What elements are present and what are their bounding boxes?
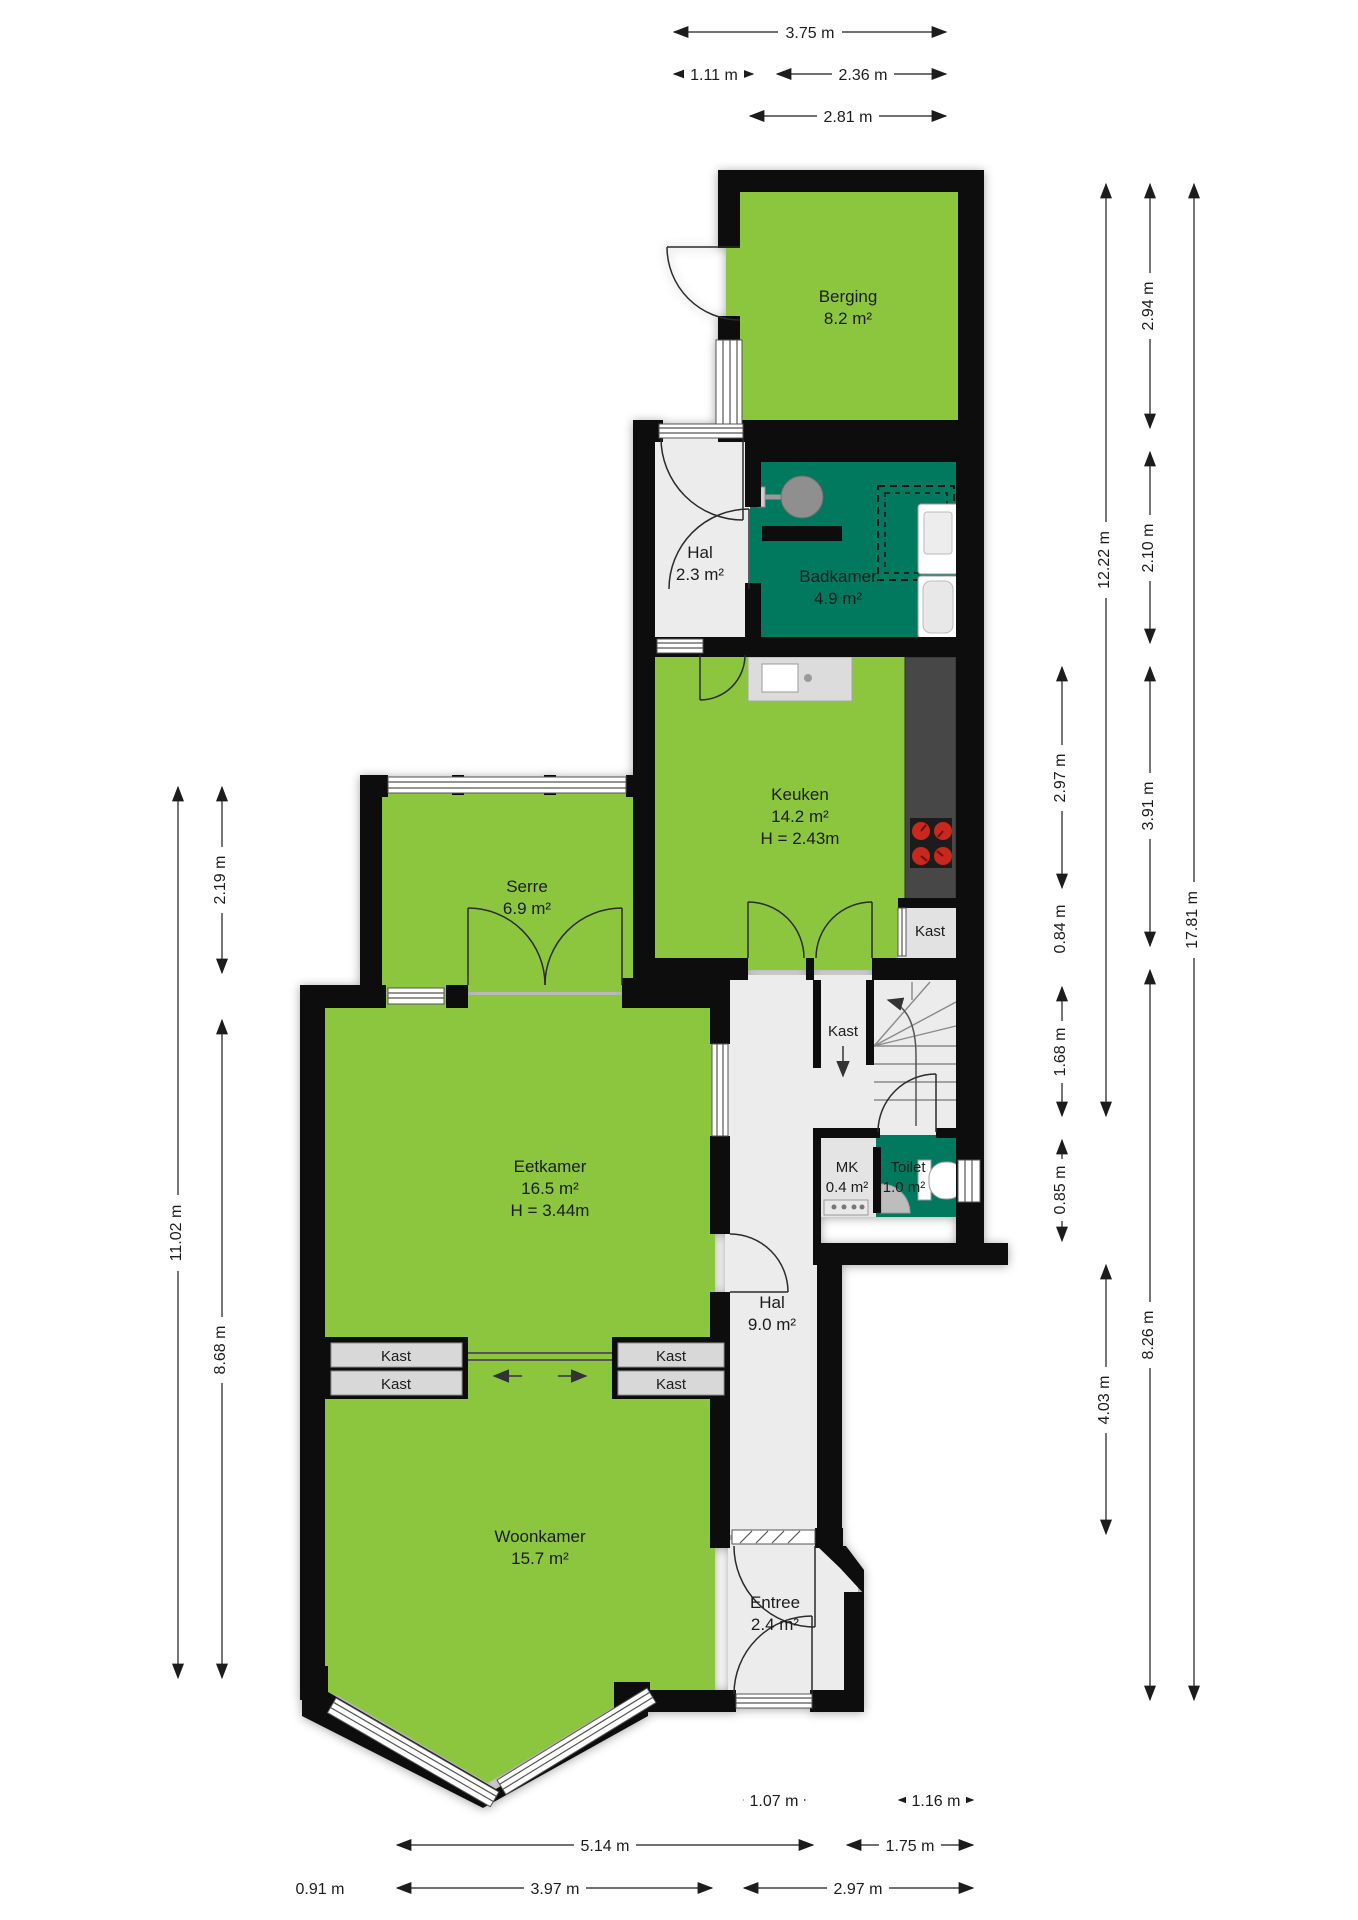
eetkamer-height: H = 3.44m [511,1201,590,1220]
dim-left-868: 8.68 m [210,1020,229,1678]
kast-trap-label: Kast [828,1023,859,1040]
hal-boven-floor [645,430,750,647]
dim-top-236: 2.36 m [777,64,946,84]
dim-right-826: 8.26 m [1138,970,1157,1700]
entree-area: 2.4 m² [751,1615,800,1634]
toilet-area: 1.0 m² [883,1179,926,1196]
kitchen-sink [762,664,798,692]
svg-text:2.81 m: 2.81 m [824,109,873,126]
dim-left-219: 2.19 m [210,787,229,973]
berging-floor [726,180,966,432]
serre-bottom-window [388,988,444,1004]
svg-text:1.11 m: 1.11 m [690,67,738,84]
svg-text:0.84 m: 0.84 m [1052,905,1069,954]
dim-right-294: 2.94 m [1138,184,1157,428]
floorplan: Berging 8.2 m² Hal 2.3 m² Badkamer 4.9 m… [300,170,1008,1808]
dim-bottom-116: 1.16 m [899,1790,973,1810]
hal-boven-bottom-window [657,639,703,653]
mk-label: MK [836,1159,859,1176]
dim-right-1781: 17.81 m [1182,184,1201,1700]
kitchen-faucet [804,674,812,682]
svg-text:3.97 m: 3.97 m [531,1881,580,1898]
serre-floor [372,785,638,992]
hal-boven-label: Hal [687,543,713,562]
svg-text:5.14 m: 5.14 m [581,1838,630,1855]
kast-rechts-2-label: Kast [656,1376,687,1393]
dim-top-111: 1.11 m [674,64,753,84]
front-door-glass [736,1694,812,1708]
svg-text:2.19 m: 2.19 m [212,856,229,905]
svg-text:1.16 m: 1.16 m [912,1793,961,1810]
svg-text:0.91 m: 0.91 m [296,1881,345,1898]
dim-right-297: 2.97 m [1050,667,1069,888]
svg-text:2.36 m: 2.36 m [839,67,888,84]
dim-bottom-397: 3.97 m [397,1878,712,1898]
eetkamer-hal-window [712,1044,728,1136]
hal-boven-area: 2.3 m² [676,565,725,584]
serre-top-window [388,777,626,793]
mk-area: 0.4 m² [826,1179,869,1196]
berging-area: 8.2 m² [824,309,873,328]
entree-inner-door-glass [732,1530,815,1544]
dim-bottom-514: 5.14 m [397,1835,813,1855]
dim-right-084: 0.84 m [1050,898,1069,960]
dim-right-085: 0.85 m [1050,1140,1069,1241]
entree-label: Entree [750,1593,800,1612]
serre-area: 6.9 m² [503,899,552,918]
svg-text:2.10 m: 2.10 m [1140,524,1157,573]
berging-window [716,340,742,424]
floorplan-canvas: Berging 8.2 m² Hal 2.3 m² Badkamer 4.9 m… [0,0,1358,1920]
svg-text:3.91 m: 3.91 m [1140,782,1157,831]
svg-text:8.26 m: 8.26 m [1140,1311,1157,1360]
kast-links-1-label: Kast [381,1348,412,1365]
toilet-window [958,1160,980,1202]
svg-text:0.85 m: 0.85 m [1052,1166,1069,1215]
kast-links-2-label: Kast [381,1376,412,1393]
serre-label: Serre [506,877,548,896]
badkamer-area: 4.9 m² [814,589,863,608]
kast-keuken-window [898,908,906,956]
svg-text:17.81 m: 17.81 m [1184,891,1201,949]
svg-text:2.97 m: 2.97 m [834,1881,883,1898]
svg-text:2.97 m: 2.97 m [1052,754,1069,803]
svg-text:8.68 m: 8.68 m [212,1326,229,1375]
kast-rechts-1-label: Kast [656,1348,687,1365]
eetkamer-label: Eetkamer [514,1157,587,1176]
bathtub-inner [923,581,953,633]
svg-text:1.75 m: 1.75 m [886,1838,935,1855]
dim-right-391: 3.91 m [1138,667,1157,946]
keuken-area: 14.2 m² [771,807,829,826]
woonkamer-area: 15.7 m² [511,1549,569,1568]
dim-top-281: 2.81 m [750,106,946,126]
dim-bottom-175: 1.75 m [847,1835,973,1855]
washbasin-bowl [924,512,952,554]
svg-text:4.03 m: 4.03 m [1096,1376,1113,1425]
dim-bottom-107: 1.07 m [744,1790,805,1810]
eetkamer-area: 16.5 m² [521,1179,579,1198]
kast-keuken-label: Kast [915,923,946,940]
badkamer-label: Badkamer [799,567,877,586]
dim-top-375: 3.75 m [674,22,946,42]
landing-floor [818,975,960,1135]
svg-text:1.68 m: 1.68 m [1052,1028,1069,1077]
svg-text:3.75 m: 3.75 m [786,25,835,42]
dim-right-403: 4.03 m [1094,1265,1113,1534]
hal-area: 9.0 m² [748,1315,797,1334]
dim-bottom-297: 2.97 m [744,1878,973,1898]
hal-label: Hal [759,1293,785,1312]
svg-text:2.94 m: 2.94 m [1140,282,1157,331]
toilet-label: Toilet [890,1159,926,1176]
berging-label: Berging [819,287,878,306]
shower-head-icon [781,476,823,518]
svg-text:12.22 m: 12.22 m [1096,531,1113,589]
dim-bottom-091: 0.91 m [290,1878,350,1898]
svg-text:11.02 m: 11.02 m [168,1205,185,1262]
dim-left-1102: 11.02 m [166,787,185,1678]
dim-right-1222: 12.22 m [1094,184,1113,1116]
svg-text:1.07 m: 1.07 m [750,1793,799,1810]
keuken-height: H = 2.43m [761,829,840,848]
woonkamer-label: Woonkamer [494,1527,586,1546]
hal-boven-top-window [659,424,743,438]
dim-right-210: 2.10 m [1138,452,1157,643]
hal-floor [725,975,820,1535]
dim-right-168: 1.68 m [1050,987,1069,1116]
floorplan-page: Berging 8.2 m² Hal 2.3 m² Badkamer 4.9 m… [0,0,1358,1920]
keuken-label: Keuken [771,785,829,804]
